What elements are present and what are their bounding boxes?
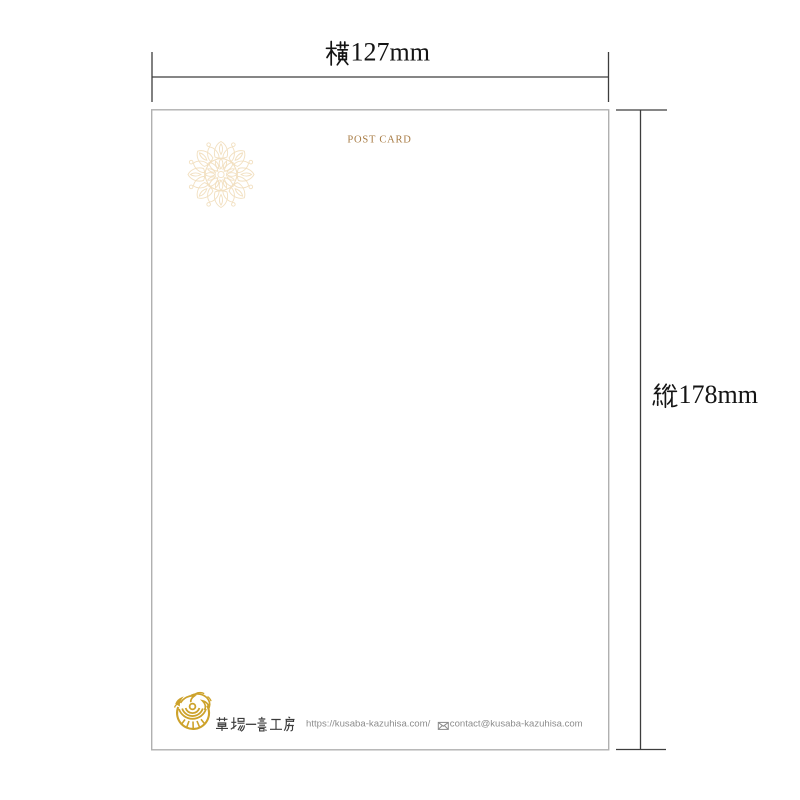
svg-text:POST CARD: POST CARD (347, 135, 411, 146)
svg-text:127mm: 127mm (351, 38, 430, 67)
svg-text:contact@kusaba-kazuhisa.com: contact@kusaba-kazuhisa.com (450, 719, 583, 730)
svg-text:https://kusaba-kazuhisa.com/: https://kusaba-kazuhisa.com/ (306, 719, 431, 730)
svg-text:178mm: 178mm (679, 380, 758, 409)
